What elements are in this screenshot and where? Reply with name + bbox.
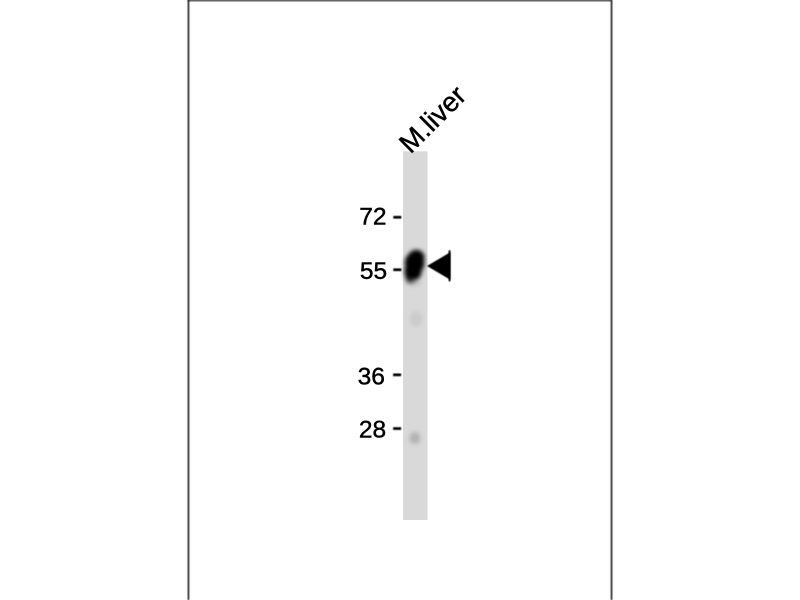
svg-text:72: 72 xyxy=(359,204,386,231)
svg-text:36: 36 xyxy=(358,363,385,390)
svg-text:28: 28 xyxy=(359,417,386,444)
svg-text:55: 55 xyxy=(360,258,387,285)
